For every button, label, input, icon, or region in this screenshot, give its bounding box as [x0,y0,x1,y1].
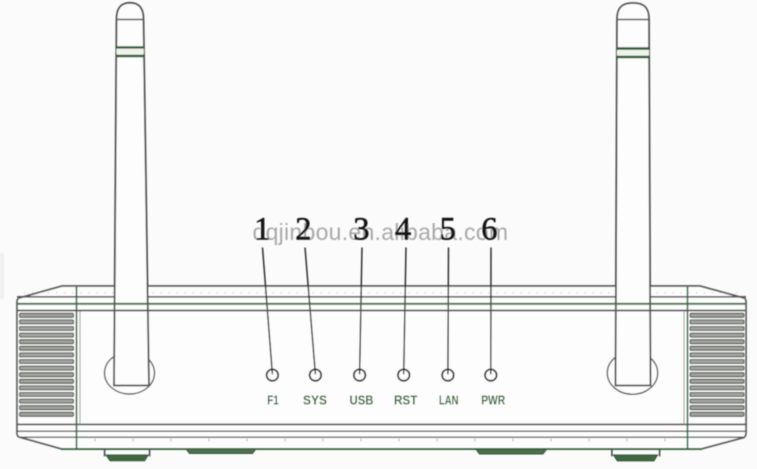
svg-text:LAN: LAN [439,393,459,408]
svg-text:2: 2 [295,212,311,248]
svg-text:6: 6 [481,212,497,248]
svg-text:PWR: PWR [481,393,505,408]
svg-text:F1: F1 [267,393,279,408]
svg-text:5: 5 [440,212,456,248]
svg-text:RST: RST [394,393,418,408]
svg-text:dqjinbou.en.alibaba.com: dqjinbou.en.alibaba.com [253,219,509,245]
svg-text:USB: USB [350,393,374,408]
svg-text:3: 3 [353,212,369,248]
svg-text:4: 4 [395,212,411,248]
svg-text:SYS: SYS [303,393,327,408]
svg-text:1: 1 [254,212,270,248]
